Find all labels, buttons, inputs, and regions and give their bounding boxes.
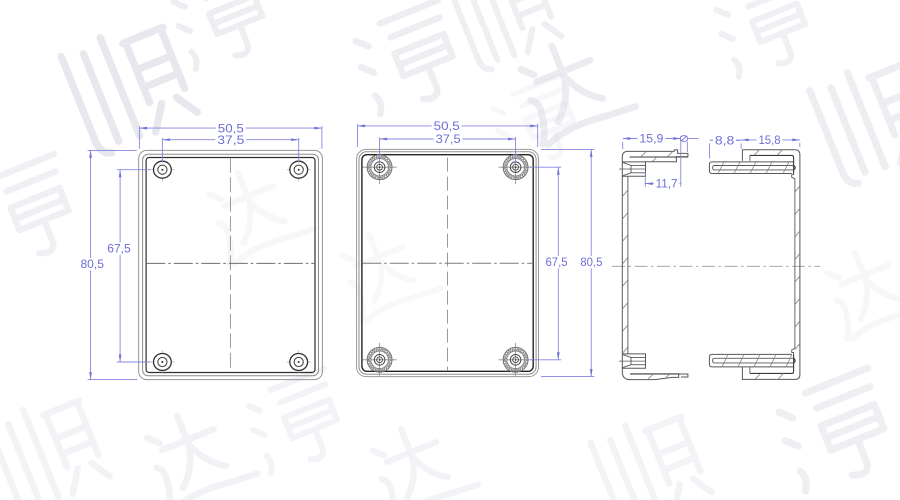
svg-text:67,5: 67,5 [107,242,131,256]
svg-text:11,7: 11,7 [656,177,678,191]
svg-text:50,5: 50,5 [434,119,460,133]
svg-text:8,8: 8,8 [715,134,735,148]
svg-text:37,5: 37,5 [436,132,461,146]
svg-text:15,8: 15,8 [759,133,781,147]
svg-text:37,5: 37,5 [217,133,244,147]
svg-text:15,9: 15,9 [639,132,663,146]
svg-text:80,5: 80,5 [580,255,602,269]
svg-text:80,5: 80,5 [80,257,104,271]
svg-text:67,5: 67,5 [546,255,568,269]
